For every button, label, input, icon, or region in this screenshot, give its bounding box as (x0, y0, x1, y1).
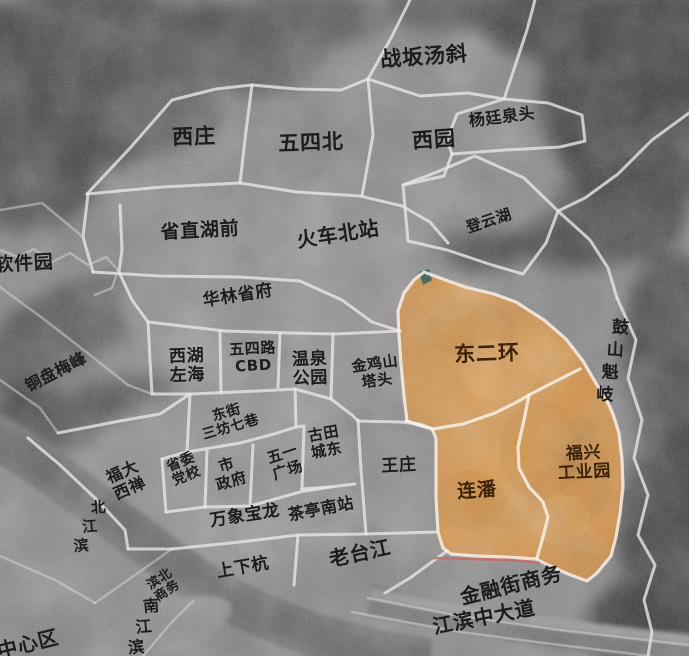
label-dengyunhu: 登云湖 (464, 206, 514, 236)
label-fuxing-gongyeyuan: 福兴工业园 (557, 443, 612, 483)
label-wanxiang-baolong: 万象宝龙 (209, 501, 282, 531)
label-shengwei-dangxiao: 省委党校 (165, 450, 204, 489)
label-line: 登云湖 (464, 206, 514, 236)
label-dongjie-sanfang-qixiang: 东街三坊七巷 (197, 398, 261, 444)
label-xizhuang: 西庄 (172, 125, 216, 150)
label-line: 左海 (169, 365, 205, 385)
label-lianpan: 连潘 (457, 479, 498, 503)
label-line: 火车北站 (295, 217, 381, 252)
label-fuda-xichan: 福大西禅 (104, 457, 149, 503)
label-wenquan-gongyuan: 温泉公园 (292, 350, 329, 389)
label-shengzhi-huqian: 省直湖前 (160, 219, 240, 244)
label-line: 战坂汤斜 (380, 42, 469, 71)
label-line: 王庄 (381, 456, 417, 477)
label-line: 工业园 (558, 462, 612, 483)
label-char: 滨 (127, 639, 145, 656)
label-char: 南 (143, 598, 161, 615)
label-line: 万象宝龙 (209, 501, 282, 531)
label-ruanjianyuan: 软件园 (0, 252, 54, 276)
label-huoche-beizhan: 火车北站 (295, 217, 381, 252)
label-nanjiangbin: 南江滨 (126, 596, 162, 656)
label-zhanban-tangxie: 战坂汤斜 (380, 42, 469, 71)
label-line: 城东 (310, 439, 344, 461)
label-line: 连潘 (457, 479, 498, 503)
label-char: 北 (90, 500, 107, 516)
label-wusilu-cbd: 五四路CBD (229, 339, 277, 374)
label-line: CBD (230, 356, 278, 375)
label-beijiangbin: 北江滨 (71, 498, 108, 556)
label-line: 老台江 (327, 536, 393, 570)
label-char: 滨 (73, 538, 90, 554)
label-char: 江 (82, 519, 99, 535)
label-laotaijiang: 老台江 (327, 536, 393, 570)
label-char: 魁 (601, 364, 620, 382)
label-line: 西庄 (172, 125, 216, 150)
label-line: 软件园 (0, 252, 54, 276)
label-shangxiahang: 上下杭 (215, 554, 270, 582)
label-char: 江 (135, 618, 153, 635)
label-line: 西湖 (169, 347, 205, 367)
label-line: 省直湖前 (160, 219, 240, 244)
label-jinjishan-tatou: 金鸡山塔头 (351, 352, 402, 391)
label-xiyuan: 西园 (411, 127, 456, 153)
label-char: 山 (606, 342, 625, 360)
label-wuyi-guangchang: 五一广场 (265, 441, 305, 482)
label-line: 茶亭南站 (287, 494, 356, 524)
label-layer: 战坂汤斜杨廷泉头西庄五四北西园登云湖省直湖前火车北站软件园华林省府铜盘梅峰西湖左… (0, 0, 689, 656)
label-wangzhuang: 王庄 (381, 456, 417, 477)
label-gushan-kuiqi: 鼓山魁岐 (595, 318, 632, 406)
label-line: 华林省府 (202, 281, 275, 311)
label-chating-nanzhan: 茶亭南站 (287, 494, 356, 524)
label-zhongxinqu: 中心区 (0, 626, 61, 656)
label-line: 温泉 (292, 350, 328, 370)
label-line: 铜盘梅峰 (22, 349, 89, 395)
label-hualin-shengfu: 华林省府 (202, 281, 275, 311)
label-line: 杨廷泉头 (468, 104, 536, 130)
label-line: 公园 (292, 368, 328, 388)
label-line: 上下杭 (215, 554, 270, 582)
label-xihu-zuohai: 西湖左海 (169, 347, 206, 386)
label-line: 东二环 (454, 341, 520, 366)
label-shi-zhengfu: 市政府 (209, 453, 248, 494)
label-line: 五四北 (278, 130, 344, 155)
label-char: 岐 (596, 387, 615, 405)
label-wusibei: 五四北 (278, 130, 344, 155)
label-dong-er-huan: 东二环 (454, 341, 520, 366)
label-tongpan-meifeng: 铜盘梅峰 (22, 349, 89, 395)
label-line: 中心区 (0, 626, 61, 656)
label-line: 西园 (411, 127, 456, 153)
label-char: 鼓 (611, 319, 630, 337)
map-canvas[interactable]: 战坂汤斜杨廷泉头西庄五四北西园登云湖省直湖前火车北站软件园华林省府铜盘梅峰西湖左… (0, 0, 689, 656)
label-yangting-quantou: 杨廷泉头 (468, 104, 536, 130)
label-gutian-chengdong: 古田城东 (307, 423, 343, 461)
